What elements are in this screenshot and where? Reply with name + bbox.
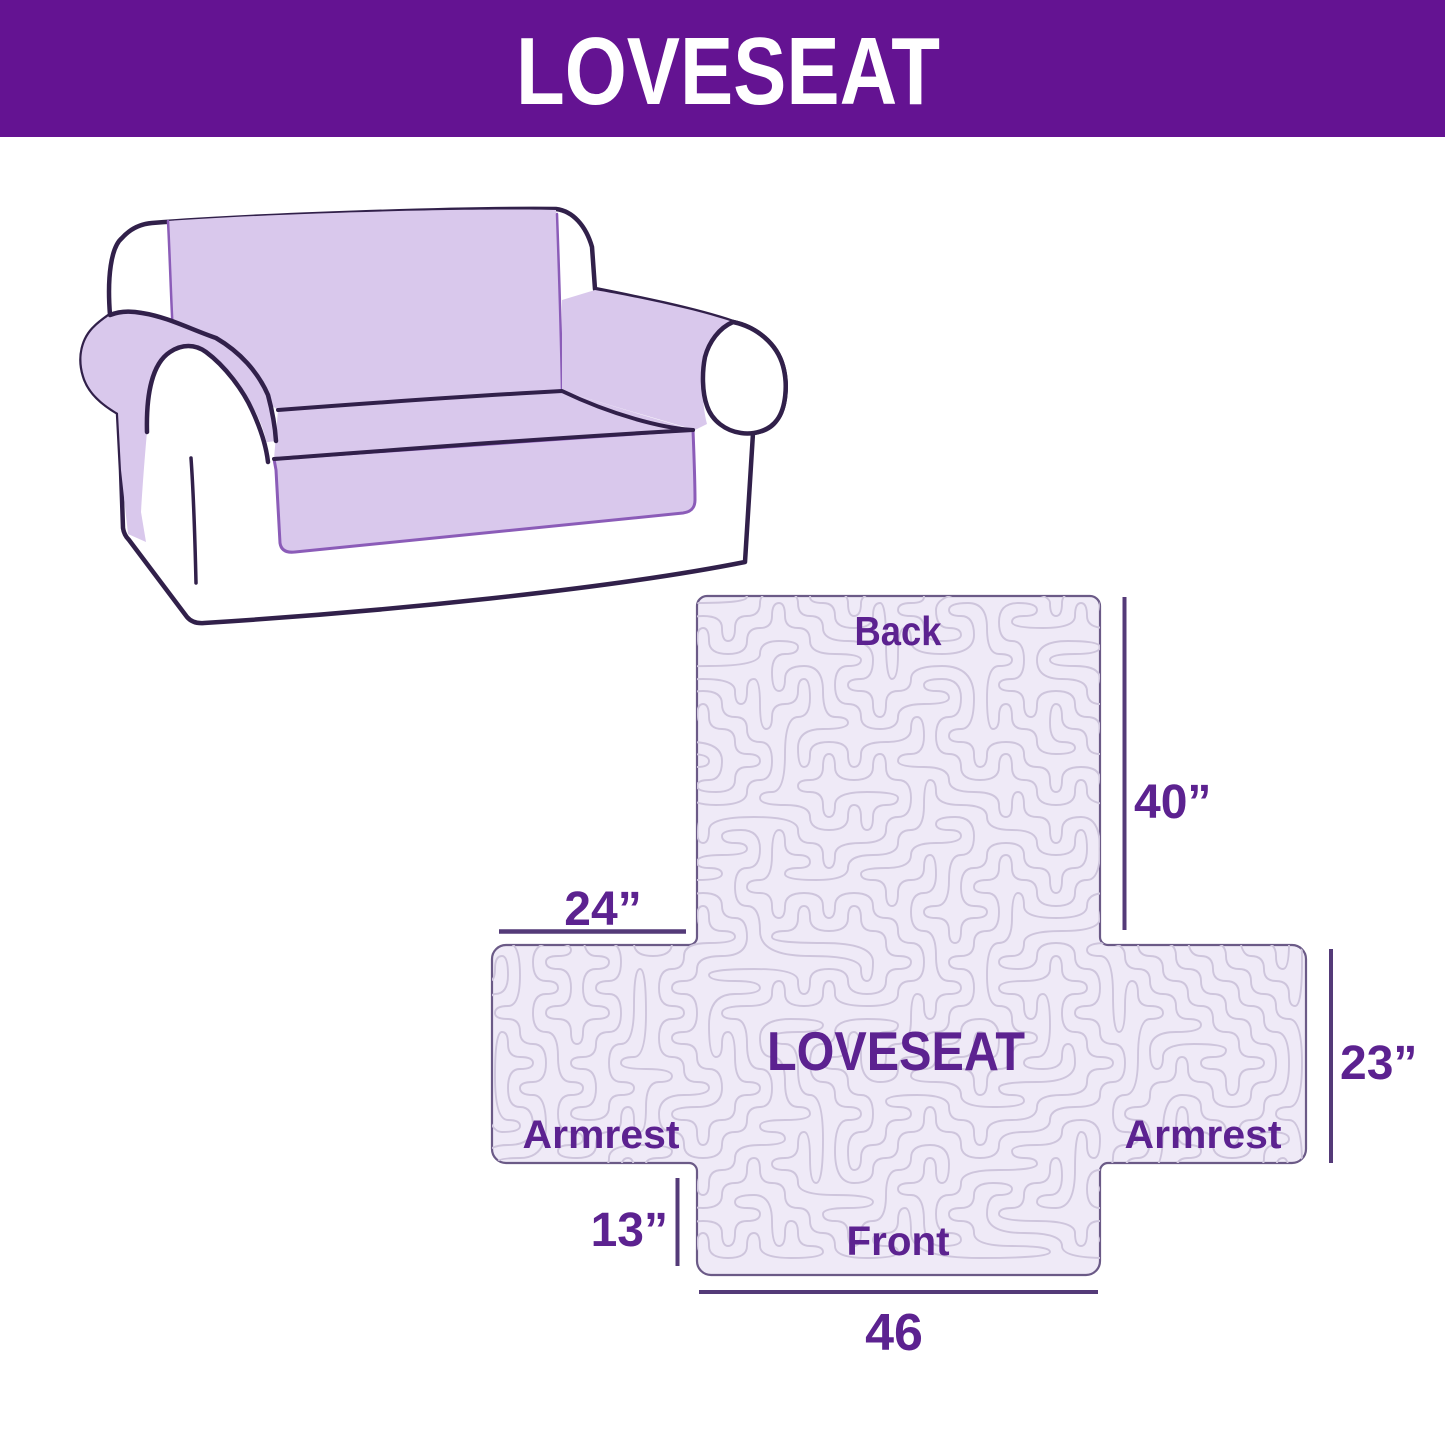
svg-text:LOVESEAT: LOVESEAT [516,18,940,125]
svg-text:Back: Back [855,608,942,654]
svg-text:Front: Front [847,1218,950,1264]
svg-text:Armrest: Armrest [523,1113,680,1157]
svg-text:LOVESEAT: LOVESEAT [767,1020,1025,1082]
svg-text:46: 46 [865,1304,923,1362]
svg-text:40”: 40” [1134,776,1211,829]
svg-text:24”: 24” [564,883,641,936]
svg-text:13”: 13” [591,1204,668,1257]
svg-text:23”: 23” [1340,1037,1417,1090]
svg-text:Armrest: Armrest [1125,1113,1282,1157]
